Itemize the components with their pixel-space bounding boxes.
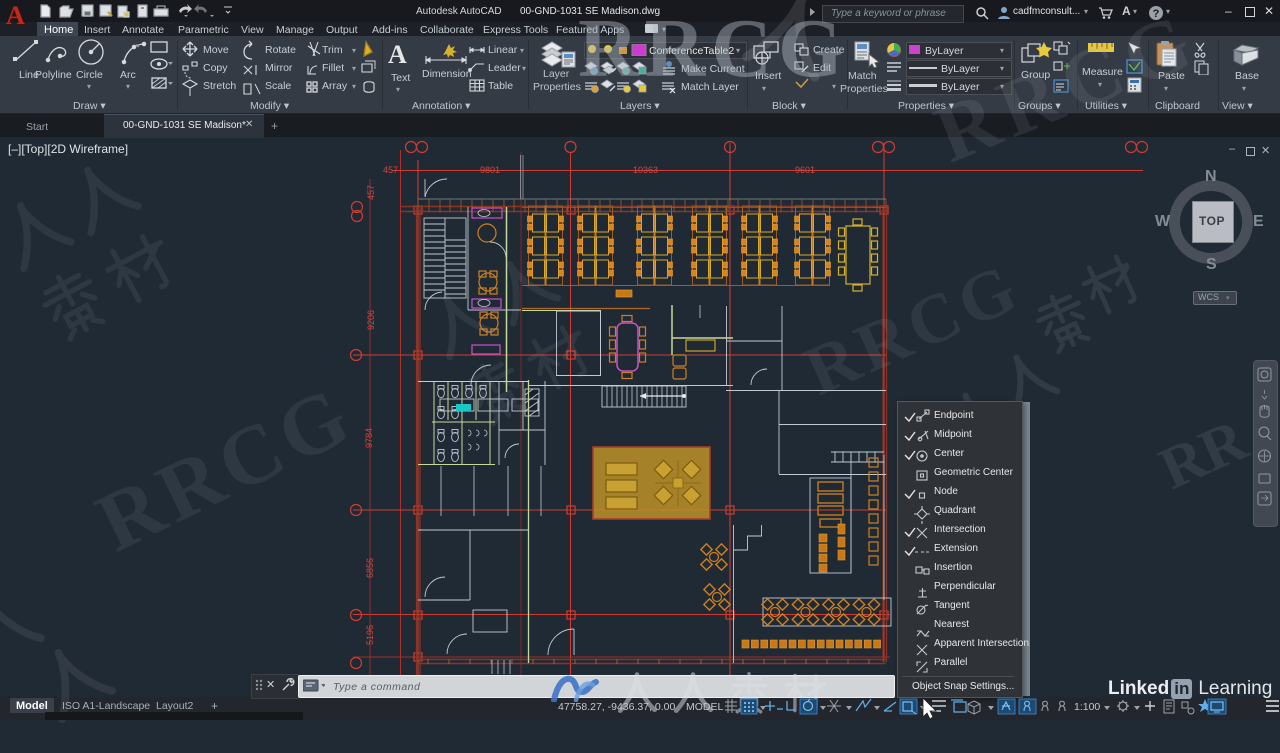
svg-text:9206: 9206 xyxy=(366,310,376,330)
svg-text:9601: 9601 xyxy=(795,165,815,175)
svg-text:1:100: 1:100 xyxy=(1074,701,1100,713)
svg-text:10363: 10363 xyxy=(633,165,658,175)
svg-text:6856: 6856 xyxy=(365,558,375,578)
svg-text:457: 457 xyxy=(383,165,398,175)
svg-text:9801: 9801 xyxy=(480,165,500,175)
svg-text:5196: 5196 xyxy=(365,625,375,645)
svg-text:457: 457 xyxy=(366,185,376,200)
